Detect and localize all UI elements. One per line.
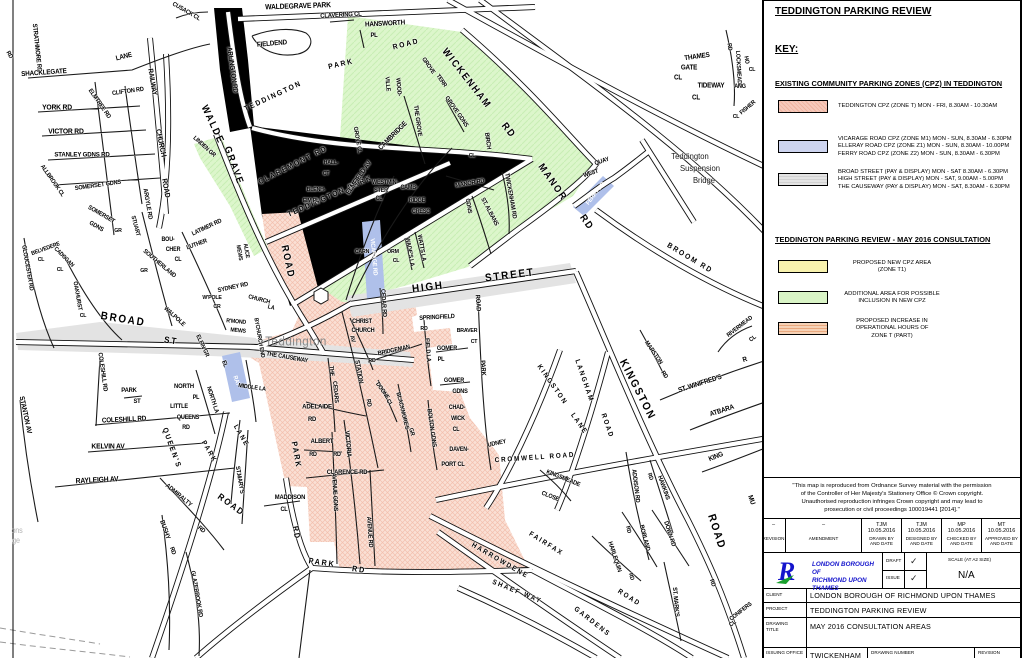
divider [806,647,807,658]
project-value: TEDDINGTON PARKING REVIEW [810,606,927,615]
revision-table-cell: TJM10.05.2016DRAWN BYAND DATE [862,519,902,552]
legend-item-text: PROPOSED INCREASE INOPERATIONAL HOURS OF… [837,318,947,340]
divider [974,647,975,658]
panel-right-border [1020,0,1022,658]
legend-item-text: ADDITIONAL AREA FOR POSSIBLEINCLUSION IN… [837,291,947,306]
panel-left-border [762,0,764,658]
legend-swatch-orange [778,322,828,335]
legend-item-text: BROAD STREET (PAY & DISPLAY) MON - SAT 8… [838,169,1018,191]
divider [806,588,807,647]
legend-swatch-green [778,291,828,304]
client-value: LONDON BOROUGH OF RICHMOND UPON THAMES [810,591,996,600]
divider [762,602,1022,603]
legend-panel: TEDDINGTON PARKING REVIEW KEY: EXISTING … [762,0,1024,658]
revision-table-cell: MT10.05.2016APPROVED BYAND DATE [982,519,1022,552]
scale-label: SCALE (AT A2 SIZE) [948,557,991,563]
issue-check: ✓ [910,573,918,584]
divider [762,477,1022,478]
client-label: CLIENT [766,592,782,598]
richmond-borough-logo: R [774,556,808,586]
drawing-number-label: DRAWING NUMBER [871,650,914,656]
divider [762,588,1022,589]
legend-swatch-gray [778,173,828,186]
scale-value: N/A [958,570,975,581]
issuing-office-label: ISSUING OFFICE [766,650,803,656]
revision-table-cell: TJM10.05.2016DESIGNED BYAND DATE [902,519,942,552]
divider [762,552,1022,553]
roundabout-hexagon [314,288,328,304]
drawing-title-value: MAY 2016 CONSULTATION AREAS [810,622,931,631]
teddington-parking-map-sheet: RDSTRATHMORE RDSHACKLEGATELANEYORK RDVIC… [0,0,1024,658]
issuing-office-value: TWICKENHAM [810,651,861,658]
existing-cpz-heading: EXISTING COMMUNITY PARKING ZONES (CPZ) I… [775,80,1002,89]
map-canvas [0,0,768,658]
revision-table-cell: –REVISION [762,519,786,552]
map: RDSTRATHMORE RDSHACKLEGATELANEYORK RDVIC… [0,0,768,658]
consultation-heading: TEDDINGTON PARKING REVIEW - MAY 2016 CON… [775,236,990,245]
divider [867,647,868,658]
revision-table-cell: –AMENDMENT [786,519,862,552]
legend-item-text: TEDDINGTON CPZ (ZONE T) MON - FRI, 8.30A… [838,103,1018,110]
copyright-note: "This map is reproduced from Ordnance Su… [768,483,1016,515]
divider [762,617,1022,618]
divider [882,570,926,571]
issue-label: ISSUE [886,575,900,581]
legend-item-text: PROPOSED NEW CPZ AREA(ZONE T1) [837,260,947,275]
revision-label: REVISION [978,650,1000,656]
panel-top-border [762,0,1022,1]
legend-swatch-salmon [778,100,828,113]
project-label: PROJECT [766,606,787,612]
legend-swatch-lavender [778,140,828,153]
legend-swatch-yellow [778,260,828,273]
divider [926,553,927,588]
draft-label: DRAFT [886,558,901,564]
revision-table-cell: MP10.05.2016CHECKED BYAND DATE [942,519,982,552]
logo-text: LONDON BOROUGH OF RICHMOND UPON THAMES [812,561,882,592]
key-label: KEY: [775,44,798,56]
drawing-title-label: DRAWING TITLE [766,621,792,632]
draft-check: ✓ [910,556,918,567]
divider [762,647,1022,648]
panel-title: TEDDINGTON PARKING REVIEW [775,6,931,18]
legend-item-text: VICARAGE ROAD CPZ (ZONE M1) MON - SUN, 8… [838,136,1018,158]
